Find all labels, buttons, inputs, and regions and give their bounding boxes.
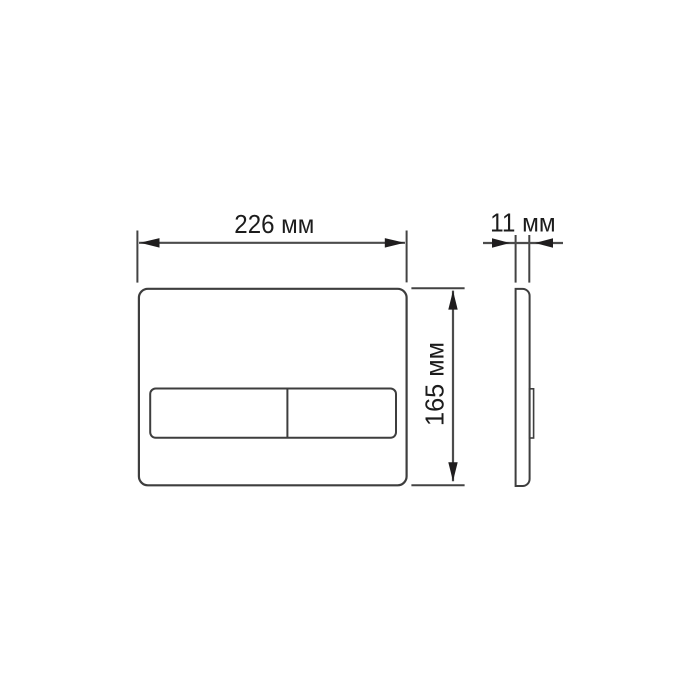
svg-text:165 мм: 165 мм [419, 342, 449, 426]
svg-text:226 мм: 226 мм [234, 209, 314, 239]
svg-text:11 мм: 11 мм [490, 208, 556, 238]
